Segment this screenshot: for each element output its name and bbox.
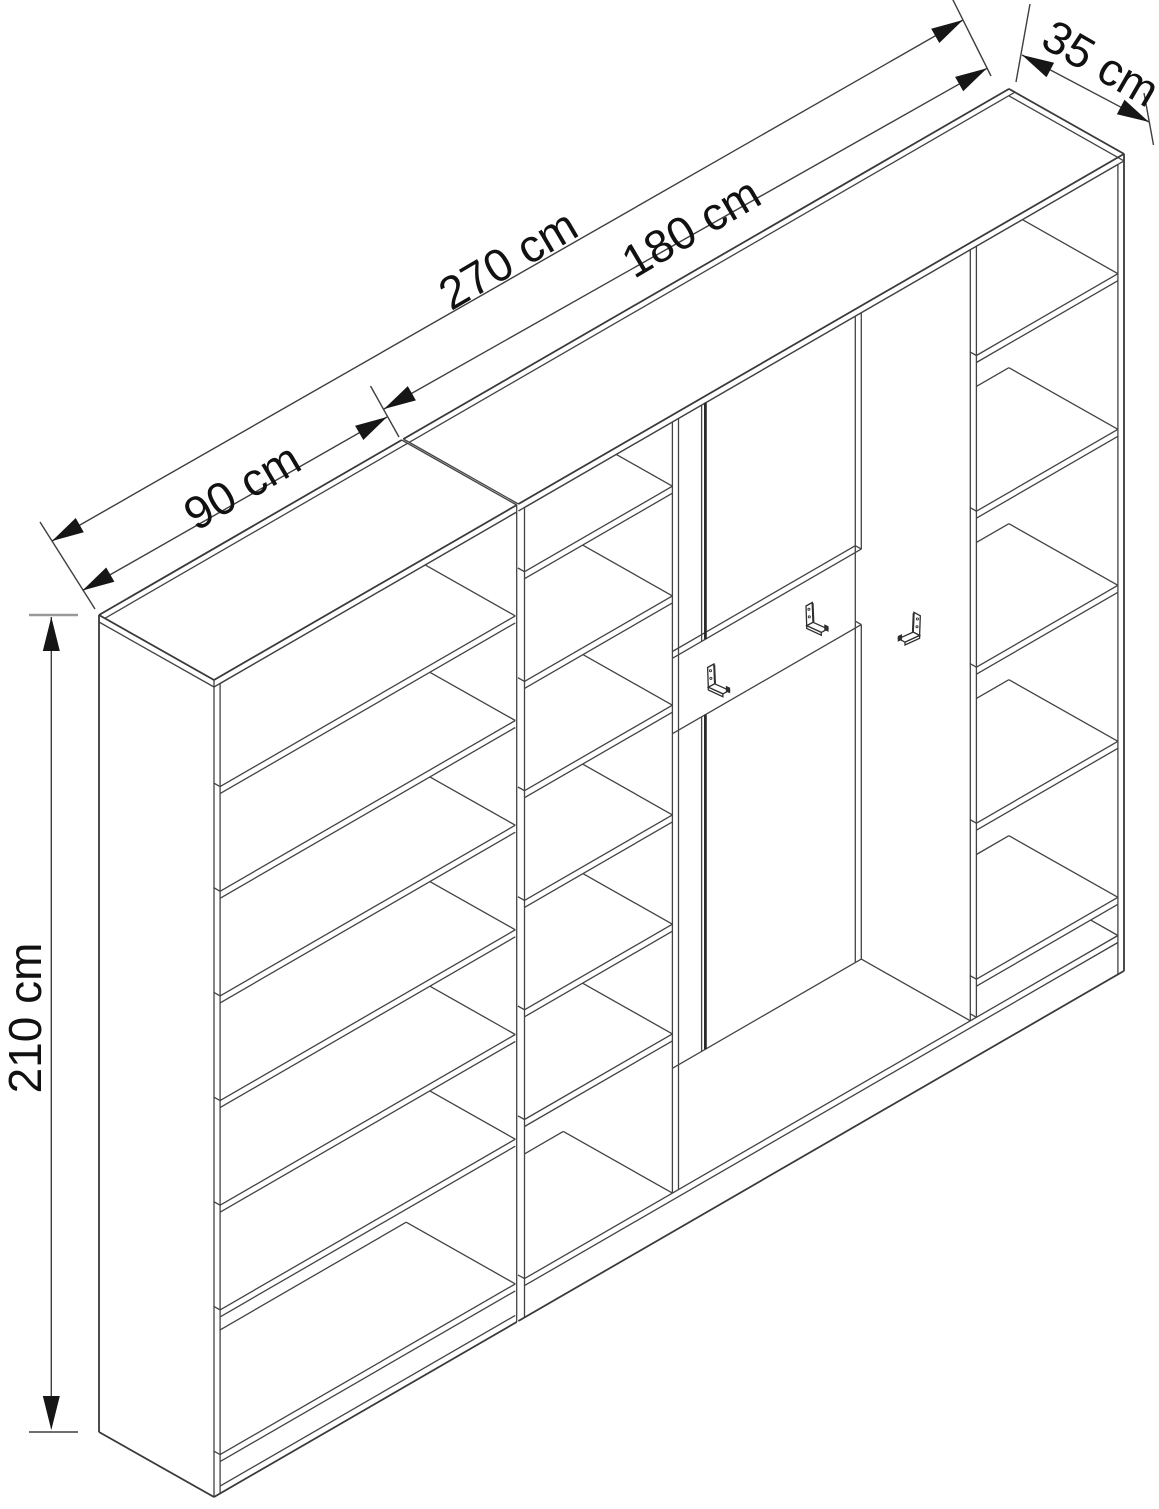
svg-text:210 cm: 210 cm <box>0 943 51 1094</box>
